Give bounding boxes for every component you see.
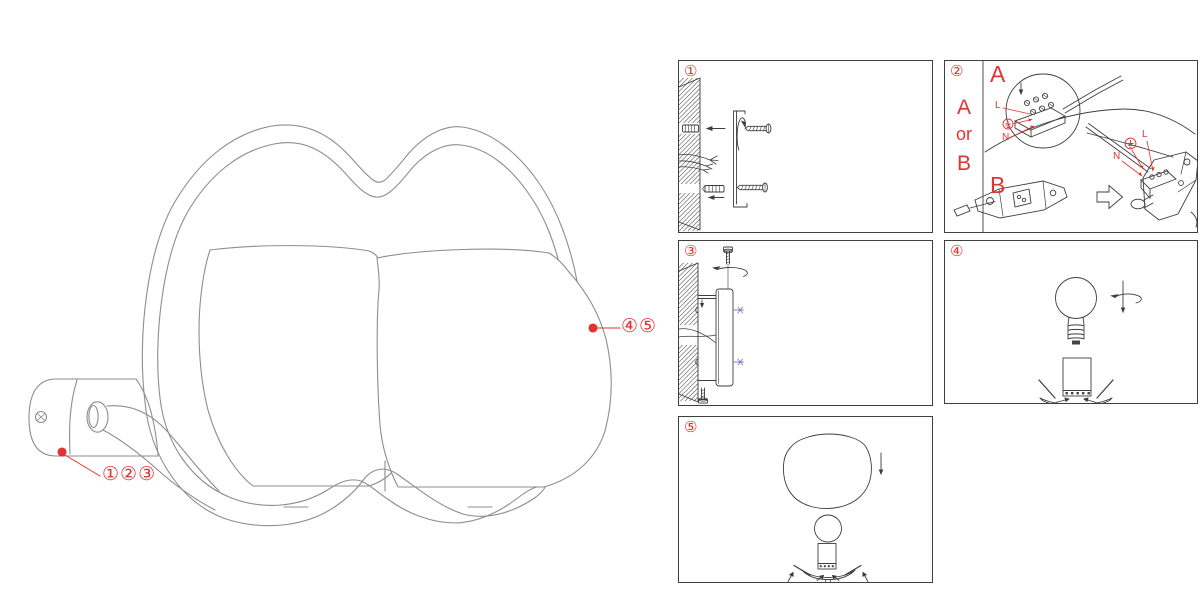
step-3-panel: ③	[678, 240, 933, 406]
instruction-sheet: ①②③ ④⑤	[0, 0, 1200, 589]
callout-parts-4-5-label: ④⑤	[621, 317, 657, 336]
screw-icon	[699, 388, 708, 403]
shade-holder-dish	[794, 566, 861, 583]
step-1-panel: ①	[678, 60, 933, 233]
bulb-icon	[815, 515, 842, 542]
step-number: ①	[684, 64, 697, 79]
option-b-label: B	[945, 153, 983, 174]
glass-shade-right	[377, 249, 611, 487]
earth-ground-icon	[1002, 118, 1014, 130]
callout-dot	[589, 324, 597, 332]
fixture-neutral-label: N	[1113, 152, 1120, 162]
callout-marker-mount	[58, 448, 100, 476]
lamp-socket	[1063, 358, 1091, 396]
zoom-leader-curves	[985, 109, 1195, 157]
callout-parts-1-2-3-label: ①②③	[102, 465, 156, 484]
arrow-icon	[709, 196, 724, 199]
arrow-icon	[701, 300, 704, 307]
next-step-arrow-icon	[1097, 186, 1123, 209]
shade-holder-dish	[1039, 380, 1113, 403]
screw-icon	[737, 183, 767, 192]
screwdriver-icon	[954, 202, 995, 217]
glass-shade-icon	[783, 434, 871, 509]
rotation-arrow-icon	[1112, 281, 1142, 312]
lamp-assembly-drawing	[0, 0, 660, 589]
thumbscrew-icon	[733, 307, 744, 365]
earth-ground-icon	[1124, 137, 1137, 150]
arrow-icon	[707, 127, 725, 131]
step-number: ②	[950, 64, 963, 79]
rotation-arrow-icon	[737, 118, 745, 150]
terminal-neutral-label: N	[1002, 133, 1009, 143]
step-4-panel: ④	[944, 240, 1198, 404]
lamp-socket	[818, 544, 836, 570]
step-2-panel: ② A or B A B L N L N	[944, 60, 1198, 233]
step-number: ③	[684, 244, 697, 259]
arrow-icon	[879, 453, 882, 474]
bulb-icon	[1056, 278, 1097, 345]
wall-anchor-icon	[703, 186, 725, 193]
terminal-live-label: L	[995, 101, 1001, 111]
bracket-b	[975, 181, 1067, 218]
step-number: ④	[950, 244, 963, 259]
option-or-label: or	[945, 125, 983, 143]
step-5-panel: ⑤	[678, 416, 933, 583]
section-b-label: B	[990, 174, 1005, 197]
option-a-label: A	[945, 97, 983, 118]
arrow-icon	[1056, 398, 1096, 403]
screw-icon	[745, 124, 771, 133]
section-a-label: A	[990, 63, 1005, 86]
callout-marker-shade	[589, 324, 620, 332]
step-number: ⑤	[684, 420, 697, 435]
screw-icon	[36, 412, 47, 423]
fixture-live-label: L	[1142, 130, 1148, 140]
rotation-arrow-icon	[714, 267, 748, 277]
arrow-icon	[788, 573, 868, 582]
wall-mount	[29, 379, 158, 456]
